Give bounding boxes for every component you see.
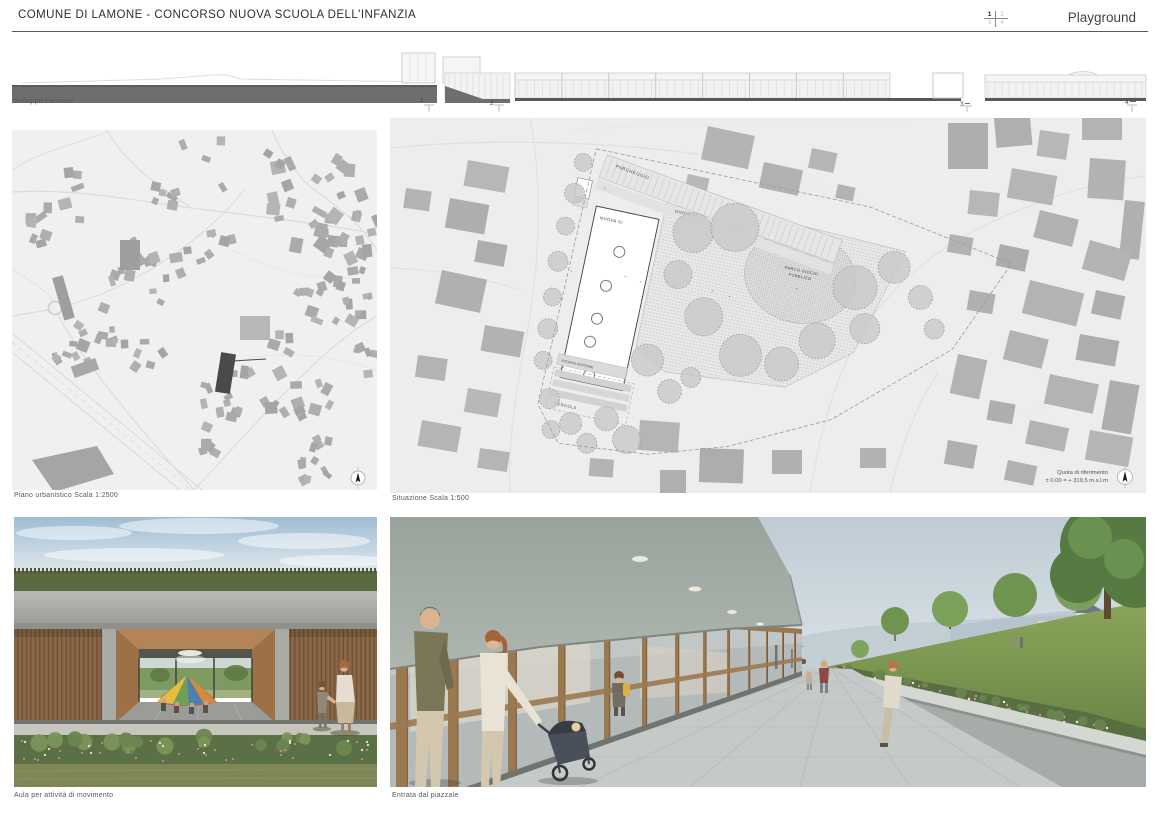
reference-line1: Quota di riferimento xyxy=(1057,470,1108,476)
render-entrance xyxy=(390,517,1146,787)
facade-elevations: 1 2 3 4 xyxy=(12,48,1148,112)
sheet-grid-cell-4: 4 xyxy=(996,19,1008,27)
render2-caption: Entrata dal piazzale xyxy=(392,792,458,799)
sheet-name: Playground xyxy=(1068,10,1136,25)
concrete-band xyxy=(14,591,377,625)
sheet-grid-cell-1: 1 xyxy=(984,11,996,19)
foreground-grass xyxy=(14,764,377,787)
urban-plan-map xyxy=(12,130,377,490)
sheet-grid-cell-2: 2 xyxy=(996,11,1008,19)
site-plan-caption: Situazione Scala 1:500 xyxy=(392,495,469,502)
timber-slats-right xyxy=(289,629,377,722)
reference-line2: ± 0.00 = + 319,5 m.s.l.m xyxy=(1046,478,1109,484)
competition-board: COMUNE DI LAMONE - CONCORSO NUOVA SCUOLA… xyxy=(0,0,1160,816)
timber-slats-left xyxy=(14,629,102,722)
facade-marker-2: 2 xyxy=(490,100,494,107)
render-movement-room xyxy=(14,517,377,787)
sheet-grid-cell-3: 3 xyxy=(984,19,996,27)
facade-ground-posts xyxy=(424,105,1137,112)
urban-plan-caption: Piano urbanistico Scala 1:2500 xyxy=(14,492,118,499)
sheet-index-grid: 1 2 3 4 xyxy=(984,11,1008,27)
site-plan-map: PARCHEGGIO + NUOVA SI GIOCO SI PARCO GIO… xyxy=(390,118,1146,493)
board-title: COMUNE DI LAMONE - CONCORSO NUOVA SCUOLA… xyxy=(18,9,416,21)
render1-caption: Aula per attività di movimento xyxy=(14,792,113,799)
header-rule xyxy=(12,31,1148,32)
facade-marker-3: 3 xyxy=(960,101,964,108)
facade-strip-label: Sviluppo Facciate xyxy=(14,98,74,105)
facade-segment-4 xyxy=(985,75,1146,82)
facade-marker-1: 1 xyxy=(420,97,424,104)
facade-segment-1 xyxy=(12,85,437,103)
opening xyxy=(116,629,275,722)
